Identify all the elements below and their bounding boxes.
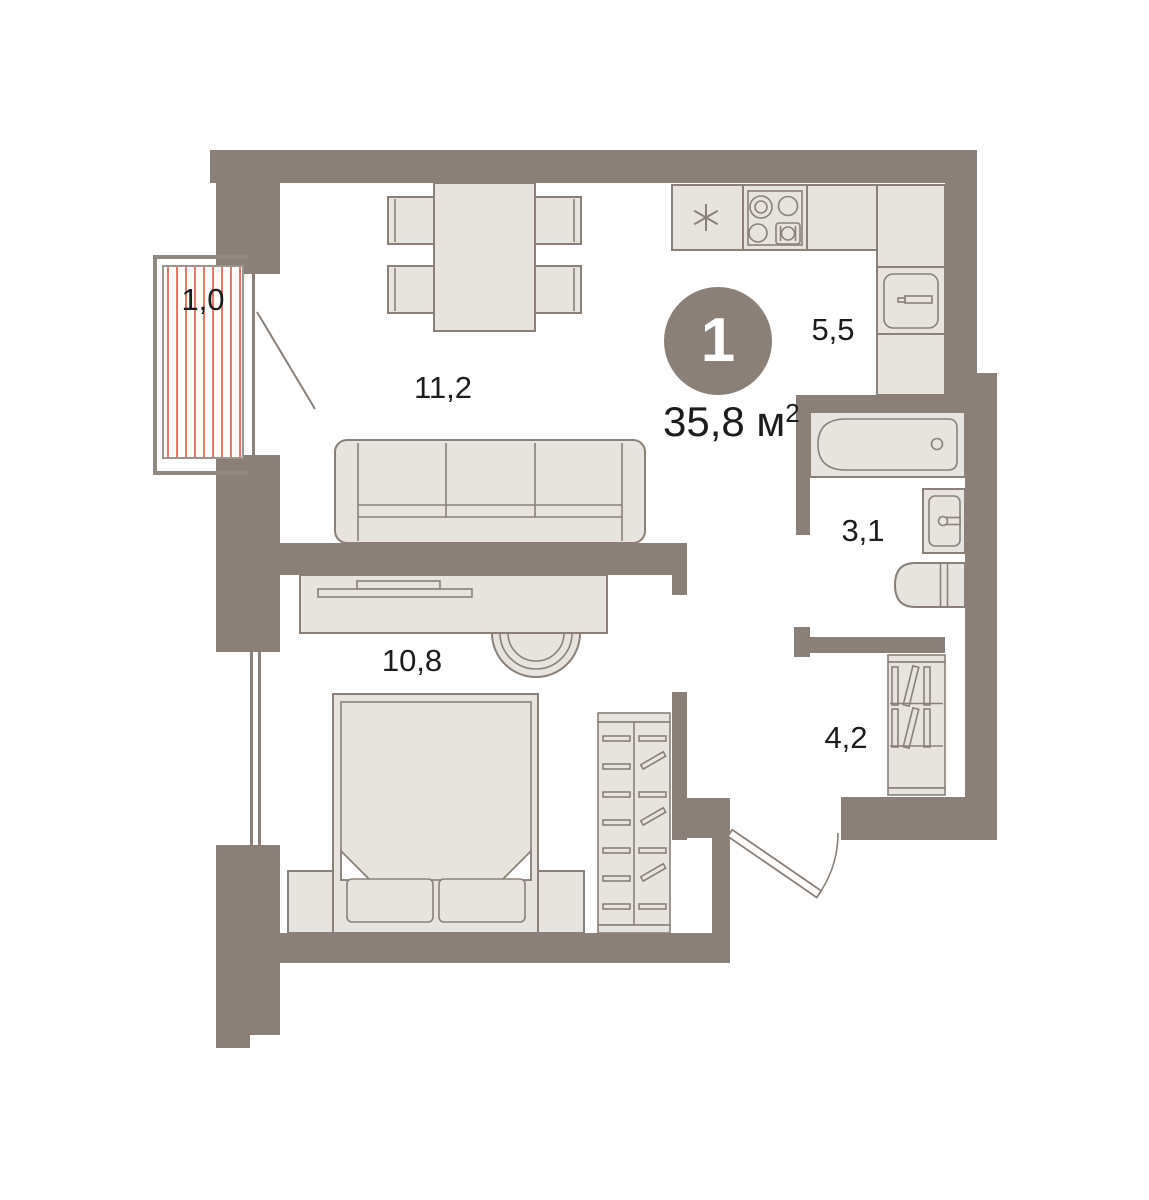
wall-entry-left-block	[687, 798, 730, 838]
floor-plan-drawing	[0, 0, 1149, 1200]
kitchen-faucet-icon	[905, 296, 932, 303]
room-area-label-hallway: 4,2	[824, 720, 867, 756]
entrance-door	[728, 830, 838, 898]
wall-right-step	[945, 373, 997, 397]
bedroom-window	[252, 652, 260, 845]
room-area-label-kitchen: 5,5	[811, 312, 854, 348]
wall-bathroom-bottom	[794, 637, 945, 653]
total-area-sup: 2	[785, 398, 799, 428]
wall-partition-living-bedroom	[270, 543, 687, 575]
door-leaf	[728, 830, 822, 898]
wall-right-kitchen	[945, 152, 977, 373]
nightstand-right	[538, 871, 584, 933]
room-count: 1	[701, 310, 735, 372]
bedroom-closet	[598, 713, 670, 933]
wall-left-lower-stub	[216, 1035, 250, 1048]
total-area-label: 35,8 м2	[663, 398, 800, 446]
kitchen-counter-mid	[807, 185, 877, 250]
door-swing-arc	[819, 833, 838, 894]
bedroom-furniture	[288, 575, 670, 933]
room-area-label-bathroom: 3,1	[841, 513, 884, 549]
wall-entry-left-column	[712, 838, 730, 963]
hallway-wardrobe	[888, 655, 945, 795]
wall-bedroom-right	[672, 692, 687, 840]
balcony-door-leaf	[257, 312, 315, 409]
dining-set	[388, 183, 581, 331]
floor-plan: 1 35,8 м2 1,0 11,2 5,5 3,1 10,8 4,2	[0, 0, 1149, 1200]
wall-bathroom-top	[796, 395, 965, 412]
wall-bedroom-bottom	[280, 933, 712, 963]
wall-left-lower	[216, 845, 280, 1035]
wall-hallway-bottom	[841, 797, 997, 840]
room-area-label-living: 11,2	[414, 370, 472, 406]
total-area-unit: м	[756, 398, 785, 445]
bathroom-faucet-icon	[939, 517, 961, 526]
sofa	[335, 440, 645, 543]
room-area-label-balcony: 1,0	[181, 282, 224, 318]
dining-table	[434, 183, 535, 331]
balcony	[155, 257, 315, 473]
room-count-badge: 1	[664, 287, 772, 395]
bathroom-fixtures	[810, 412, 965, 607]
wall-left-upper	[216, 183, 280, 274]
tv-stand	[300, 575, 607, 633]
wall-top	[210, 150, 977, 183]
kitchen-counter-corner-bottom	[877, 334, 945, 395]
bed-blanket	[341, 702, 531, 880]
kitchen-counter-corner-top	[877, 185, 945, 267]
wall-right-lower	[965, 373, 997, 840]
room-area-label-bedroom: 10,8	[382, 643, 442, 679]
armchair	[492, 633, 580, 677]
pillow	[347, 879, 433, 922]
wall-partition-stub	[672, 575, 687, 595]
total-area-value: 35,8	[663, 398, 745, 445]
nightstand-left	[288, 871, 333, 933]
pillow	[439, 879, 525, 922]
washing-machine	[895, 563, 965, 607]
